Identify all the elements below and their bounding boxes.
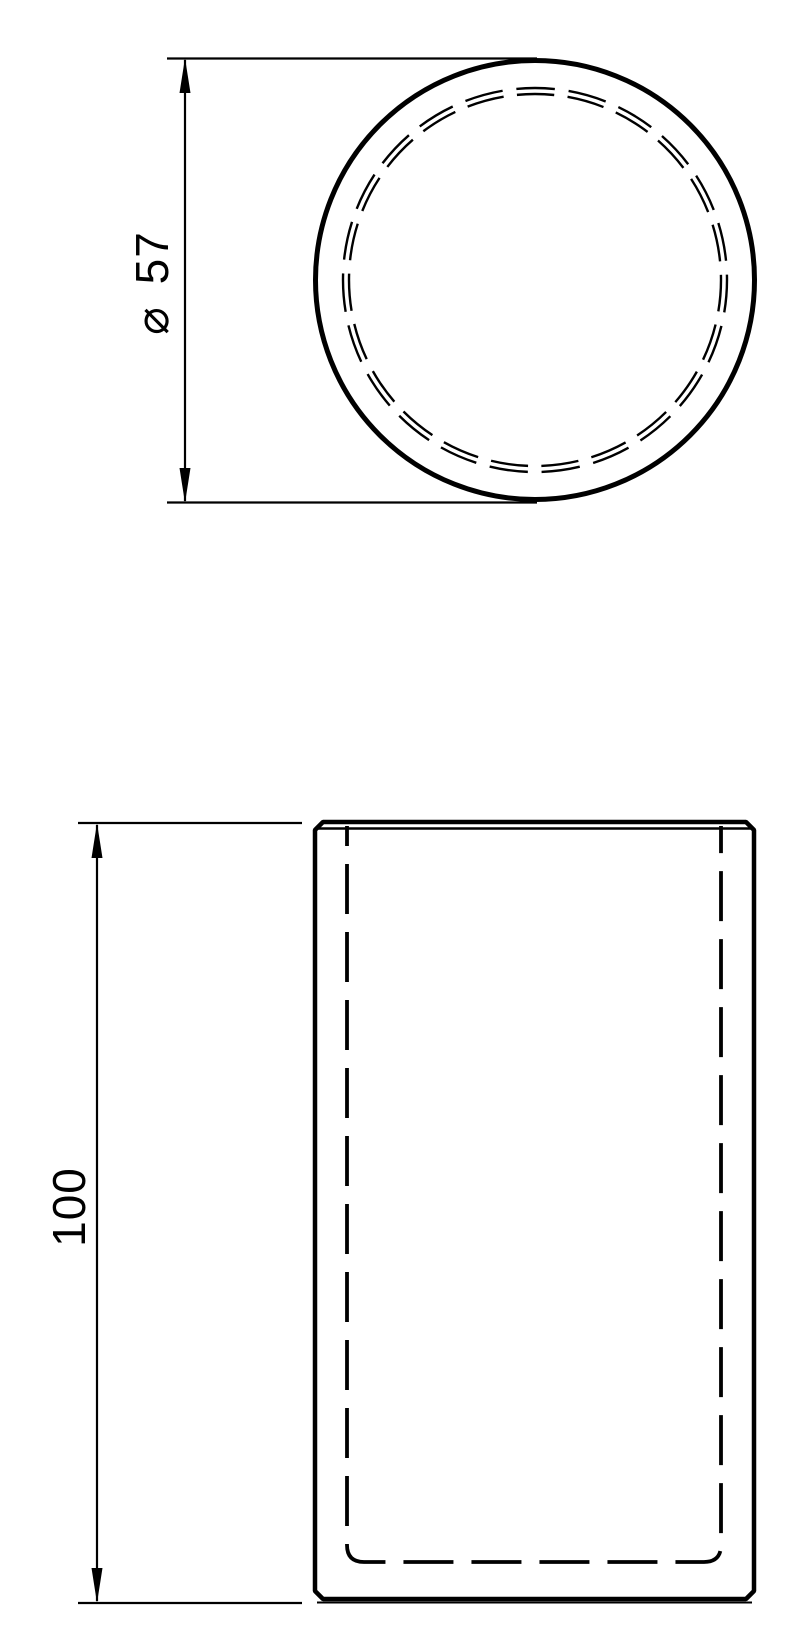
dimension-arrow-up-icon [180, 58, 191, 93]
drawing-svg [0, 0, 796, 1650]
top-view-hidden-circle-outer [343, 88, 727, 472]
front-view [78, 822, 754, 1603]
technical-drawing-page: ⌀ 57 100 [0, 0, 796, 1650]
front-view-outline [315, 822, 754, 1599]
top-view [167, 58, 755, 503]
front-view-hidden-inner-profile [347, 826, 721, 1562]
height-dimension-label: 100 [42, 1087, 96, 1327]
dimension-arrow-down-icon [180, 468, 191, 503]
diameter-dimension-label: ⌀ 57 [125, 163, 179, 403]
top-view-hidden-circle-inner [349, 94, 721, 466]
dimension-arrow-up-icon [92, 823, 103, 858]
top-view-outer-circle [316, 61, 755, 500]
dimension-arrow-down-icon [92, 1568, 103, 1603]
